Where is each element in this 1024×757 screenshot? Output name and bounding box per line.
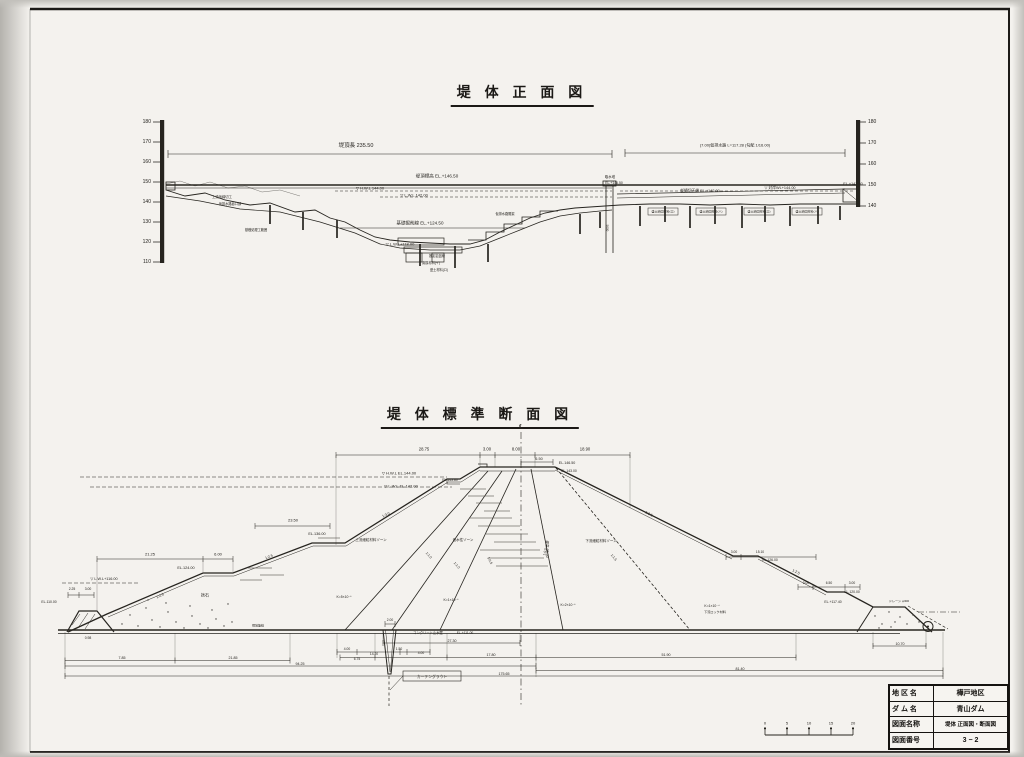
- cross-section-label: 14.20: [370, 653, 378, 657]
- front-right-axis-tick-label: 150: [868, 182, 876, 188]
- cross-section-label: 21.25: [145, 553, 155, 558]
- scale-bar-tick-label: 20: [851, 722, 855, 727]
- front-view-label: 仮締切天端 EL.+142.00: [680, 189, 720, 193]
- cross-section-label: コンクリート止水壁: [413, 632, 443, 636]
- cross-section-label: K=2×10⁻⁶: [560, 604, 575, 608]
- cross-section-label: ℄: [519, 425, 523, 432]
- cross-section-label: 1:2.5: [792, 568, 801, 575]
- scanned-drawing-sheet: { "colors": {"paper":"#f4f2ee","ink":"#2…: [0, 0, 1024, 757]
- cross-section-label: 6.00: [214, 553, 222, 558]
- cross-section-label: 現地盤線: [252, 624, 264, 627]
- title-block-drawing-number-label: 図面番号: [890, 733, 934, 749]
- cross-section-label: 3.00: [803, 582, 809, 586]
- title-block-drawing-name-value: 堤体 正面図・断面図: [934, 717, 1007, 733]
- cross-section-label: 23.50: [288, 519, 298, 524]
- front-view-label: 仮排水路呑口部: [219, 203, 241, 207]
- cross-section-label: 4.00: [344, 648, 350, 652]
- annotation-layer: 堤頂長 235.50(7.00)仮排水路 L=117.28 (勾配 1/16.0…: [0, 0, 1024, 757]
- scale-bar-tick-label: 10: [807, 722, 811, 727]
- cross-section-label: 81.40: [736, 666, 745, 670]
- cross-section-label: 1:2.5: [265, 554, 274, 561]
- front-view-label: 堤頂標高 EL.+146.50: [416, 173, 458, 178]
- front-view-label: 基礎掘削線 EL.+124.50: [397, 220, 444, 225]
- cross-section-label: EL.146.50: [559, 461, 575, 465]
- cross-section-label: 17.80: [487, 653, 496, 657]
- cross-section-label: 51.90: [662, 653, 671, 657]
- cross-section-label: K=5×10⁻⁶: [336, 596, 351, 600]
- cross-section-label: ▽ L.W.L EL.142.00: [384, 485, 418, 490]
- front-left-axis-tick-label: 160: [143, 159, 151, 165]
- cross-section-label: 6.75: [354, 658, 360, 662]
- cross-section-label: 1:2.5: [156, 592, 165, 599]
- title-block-district-label: 地 区 名: [890, 686, 934, 702]
- front-view-label: 基礎処理工範囲: [245, 229, 267, 233]
- title-block-dam-label: ダ ム 名: [890, 702, 934, 718]
- cross-section-label: 下流ロック材料: [704, 611, 726, 615]
- front-left-axis-tick-label: 130: [143, 219, 151, 225]
- title-block-district-value: 樺戸地区: [934, 686, 1007, 702]
- front-left-axis-tick-label: 120: [143, 239, 151, 245]
- front-left-axis-tick-label: 170: [143, 139, 151, 145]
- title-block-drawing-name-label: 図面名称: [890, 717, 934, 733]
- cross-section-label: ▽ L.W.L+116.00: [90, 577, 117, 581]
- scale-bar-tick-label: 0: [764, 722, 766, 727]
- cross-section-label: EL.126.00: [762, 559, 777, 563]
- front-view-label: 盛土締固材料(ハ): [796, 210, 819, 213]
- front-view-label: 上流仮締切工: [212, 196, 232, 200]
- cross-section-label: 27.30: [448, 638, 457, 642]
- front-left-axis-tick-label: 180: [143, 119, 151, 125]
- cross-section-label: 1:3.0: [382, 511, 391, 518]
- cross-section-label: 21.85: [229, 656, 238, 660]
- cross-section-label: 10.70: [896, 642, 905, 646]
- cross-section-label: ▽ H.W.L EL.144.00: [382, 472, 416, 477]
- cross-section-label: 8.00: [512, 448, 520, 453]
- title-block-dam-value: 青山ダム: [934, 702, 1007, 718]
- cross-section-label: EL.+111.00: [457, 632, 473, 636]
- cross-section-label: 175.65: [499, 672, 510, 676]
- front-left-axis-tick-label: 150: [143, 179, 151, 185]
- front-right-axis-tick-label: 140: [868, 203, 876, 209]
- cross-section-label: 2.00: [387, 619, 393, 623]
- front-view-label: 盛土締固材料(ロ): [652, 210, 675, 213]
- front-view-label: ▽ L.W.L+118.00: [386, 243, 415, 248]
- front-view-label: 堤頂長 235.50: [339, 143, 374, 149]
- front-right-axis-tick-label: 160: [868, 161, 876, 167]
- cross-section-label: 遮水性ゾーン: [453, 538, 474, 542]
- cross-section-label: カーテングラウト: [417, 674, 447, 678]
- cross-section-label: EL.143.80: [442, 479, 457, 483]
- cross-section-label: 1:2.5: [644, 510, 653, 517]
- cross-section-label: 94.25: [296, 662, 305, 666]
- scale-bar-tick-label: 15: [829, 722, 833, 727]
- front-view-label: 仮排水路開渠: [495, 213, 514, 217]
- cross-section-label: 1:1.0: [452, 562, 460, 570]
- cross-section-label: 18.90: [580, 448, 590, 453]
- cross-section-label: 3.00: [483, 448, 491, 453]
- cross-section-label: 捨石: [201, 594, 209, 599]
- front-view-label: 5000: [605, 225, 608, 232]
- front-view-label: EL.+143.50: [843, 182, 863, 186]
- front-view-label: 置換材料(イ): [422, 262, 440, 266]
- cross-section-label: 3.00: [849, 582, 855, 586]
- cross-section-label: EL.124.00: [177, 566, 194, 570]
- cross-section-label: 7.85: [119, 656, 126, 660]
- front-view-label: 盛土締固材料(ロ): [748, 210, 771, 213]
- cross-section-label: 1.50: [396, 648, 402, 652]
- cross-section-label: 1:0.5: [486, 557, 493, 565]
- cross-section-label: EL.143.00: [561, 470, 576, 474]
- cross-section-label: 3.00: [731, 551, 737, 555]
- title-block: 地 区 名 樺戸地区 ダ ム 名 青山ダム 図面名称 堤体 正面図・断面図 図面…: [888, 684, 1009, 750]
- front-view-label: ▽ 対岸WL+144.00: [764, 186, 795, 190]
- front-view-label: EL.+146.50: [605, 182, 622, 186]
- cross-section-label: EL.110.00: [41, 601, 56, 605]
- cross-section-label: EL.136.00: [308, 532, 325, 536]
- cross-section-label: 3.00: [85, 588, 92, 592]
- front-view-label: 盛土材料(ロ): [430, 269, 448, 273]
- front-left-axis-tick-label: 140: [143, 199, 151, 205]
- cross-section-label: EL.+117.40: [824, 601, 841, 605]
- cross-section-label: 0.98: [85, 637, 92, 641]
- title-block-drawing-number-value: 3 − 2: [934, 733, 1007, 749]
- cross-section-label: K=1×10⁻⁴: [704, 605, 719, 609]
- front-view-label: (7.00)仮排水路 L=117.28 (勾配 1/16.00): [700, 144, 770, 149]
- cross-section-label: 1:1.5: [609, 554, 617, 562]
- scale-bar-tick-label: 5: [786, 722, 788, 727]
- cross-section-label: 下流細粒材料ゾーン: [585, 539, 616, 543]
- cross-section-label: K=1×10⁻⁶: [443, 599, 458, 603]
- cross-section-label: 堤高 35.50: [545, 540, 549, 557]
- cross-section-label: 15.10: [756, 551, 764, 555]
- front-view-label: 盛土締固材料(ハ): [700, 210, 723, 213]
- cross-section-label: ドレーン φ300: [889, 600, 909, 604]
- front-right-axis-tick-label: 170: [868, 140, 876, 146]
- front-right-axis-tick-label: 180: [868, 119, 876, 125]
- cross-section-label: EL.120.00: [844, 591, 859, 595]
- cross-section-label: 6.50: [826, 582, 832, 586]
- cross-section-label: 6.50: [535, 457, 542, 461]
- cross-section-label: 28.75: [419, 448, 429, 453]
- cross-section-label: 4.00: [418, 652, 424, 656]
- front-left-axis-tick-label: 110: [143, 259, 151, 265]
- front-view-label: 推定岩盤線: [429, 255, 445, 259]
- cross-section-label: 1:1.0: [424, 552, 432, 560]
- cross-section-label: 2.25: [69, 588, 76, 592]
- front-view-label: ▽ L.W.L 142.00: [400, 194, 428, 199]
- front-view-label: 取水塔: [605, 176, 615, 180]
- cross-section-label: 上流細粒材料ゾーン: [355, 538, 386, 542]
- front-view-label: ▽ H.W.L 144.00: [356, 187, 384, 192]
